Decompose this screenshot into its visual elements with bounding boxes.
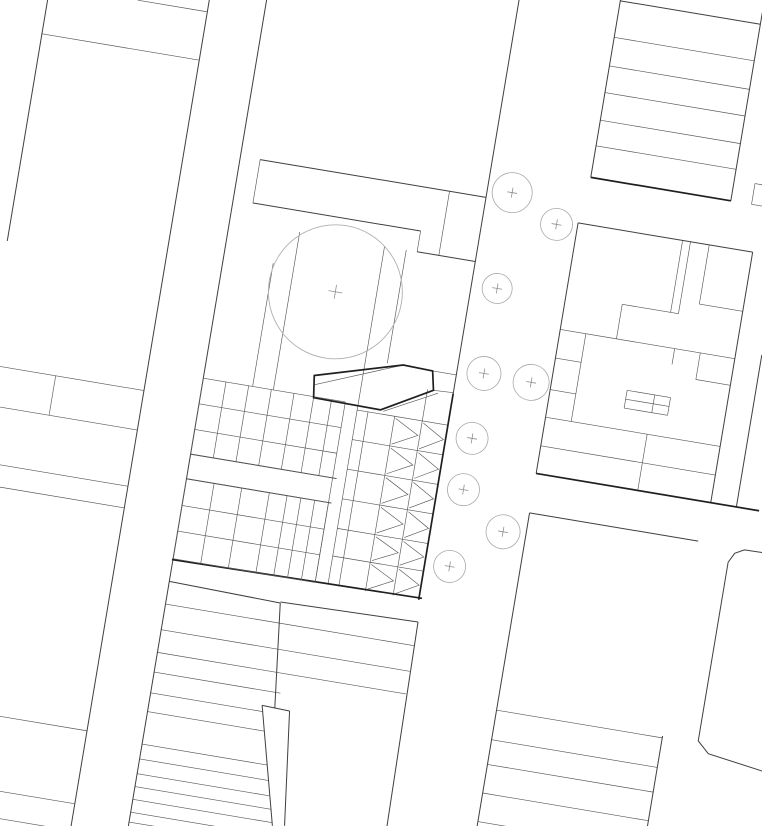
paving-grid-layer (173, 378, 345, 582)
site-plan-svg (0, 0, 762, 826)
plan-rotated-group (0, 0, 762, 826)
linework-thin-layer (0, 0, 762, 826)
linework-medium-layer (0, 0, 762, 826)
site-plan-canvas (0, 0, 762, 826)
